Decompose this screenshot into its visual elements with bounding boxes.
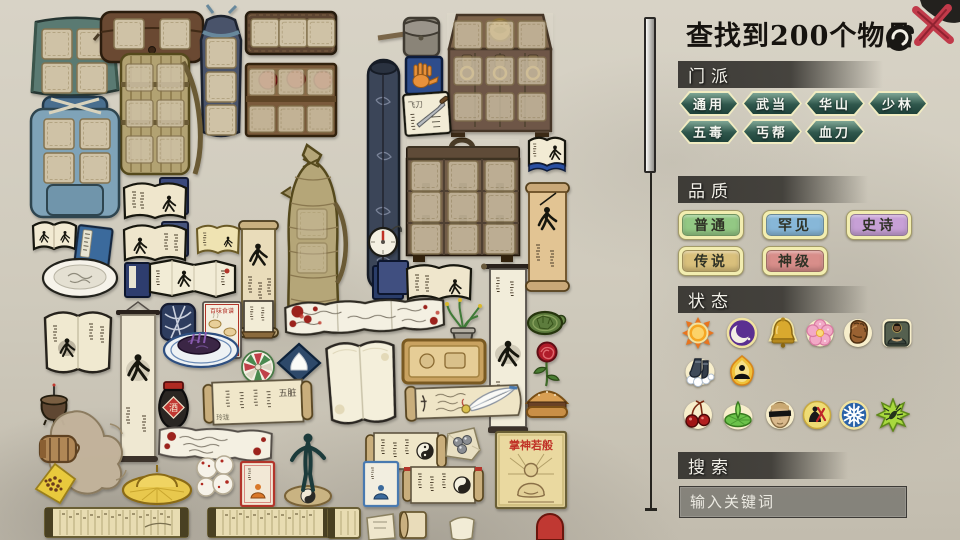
item-palm-poster[interactable]: 掌神若般 [496,432,566,508]
status-title: 状态 [688,287,734,312]
flame-meditation-icon[interactable] [725,354,759,388]
item-small-manual[interactable] [33,222,76,249]
item-bamboo-slip-scroll-2[interactable] [208,508,331,537]
moon-icon[interactable] [725,316,759,350]
sect-option-fivepoison[interactable]: 五毒 [679,119,739,144]
sect-option-shaolin[interactable]: 少林 [868,91,928,116]
organs-scroll-sublabel: 玲珑 [216,412,230,421]
knife-note-label: 飞刀 [407,100,423,110]
item-white-plate[interactable] [43,259,117,297]
search-section-header: 搜索 [678,452,848,479]
item-turtle[interactable] [528,312,566,334]
item-blue-backpack[interactable] [31,97,119,217]
item-floral-pouch[interactable] [201,5,241,136]
item-bloody-letter[interactable] [159,427,272,462]
item-hanging-scroll[interactable] [116,302,160,462]
item-taichi-statue[interactable] [285,434,331,507]
item-wooden-tray[interactable] [403,340,485,383]
quality-title: 品质 [688,177,734,202]
bell-icon[interactable] [766,316,800,350]
sect-option-bloodblade[interactable]: 血刀 [805,119,865,144]
item-pinwheel-plate[interactable] [242,351,274,383]
lotus-icon[interactable] [721,398,755,432]
item-fruit-crate[interactable] [246,64,336,136]
item-purple-dish[interactable] [164,332,238,367]
quality-option-legendary[interactable]: 传说 [678,246,744,276]
item-yinyang-scroll-2[interactable] [403,467,483,503]
item-rose[interactable] [534,343,559,387]
blindfold-icon[interactable] [763,398,797,432]
monk-icon[interactable] [880,316,914,350]
item-knife-note[interactable]: 飞刀 [403,92,451,136]
item-wine-jar[interactable]: 酒 [159,382,188,428]
item-meditation-card[interactable] [241,462,274,506]
item-manual-open-a[interactable] [124,178,188,218]
item-bamboo-slip-scroll[interactable] [45,508,188,537]
item-scroll-fragment-b[interactable] [400,512,426,538]
quality-option-common[interactable]: 普通 [678,210,744,240]
search-input[interactable] [679,486,907,518]
item-open-tome[interactable] [45,312,111,372]
item-organs-scroll[interactable]: 五脏 玲珑 [203,379,312,425]
item-wooden-chest[interactable] [447,13,553,137]
item-book-stack-open[interactable] [373,261,471,299]
sect-section-header: 门派 [678,61,883,88]
item-paper-fragment[interactable] [367,514,395,540]
snowflake-icon[interactable] [837,398,871,432]
sect-title: 门派 [688,62,734,87]
sect-option-huashan[interactable]: 华山 [805,91,865,116]
status-section-header: 状态 [678,286,868,313]
game-screen: 飞刀 [0,0,960,540]
wine-jar-label: 酒 [169,403,178,414]
item-blue-meditation-card[interactable] [364,462,398,506]
quality-option-rare[interactable]: 罕见 [762,210,828,240]
close-button[interactable] [896,0,960,53]
organs-scroll-label: 五脏 [278,387,296,400]
poison-insect-icon[interactable] [876,398,910,432]
item-metal-balls-paper[interactable] [446,428,480,460]
sect-option-beggar[interactable]: 丐帮 [742,119,802,144]
sect-option-wudang[interactable]: 武当 [742,91,802,116]
cloud-boots-icon[interactable] [683,354,717,388]
item-wooden-cabinet[interactable] [407,139,519,262]
item-red-fragment[interactable] [537,514,563,540]
item-straw-hat[interactable] [123,465,191,504]
results-title: 查找到200个物品 [686,14,913,53]
assassin-icon[interactable] [800,398,834,432]
search-title: 搜索 [688,453,734,478]
blossom-icon[interactable] [803,316,837,350]
sect-option-common[interactable]: 通用 [679,91,739,116]
fist-icon[interactable] [841,316,875,350]
item-blue-manual-icon[interactable] [529,138,565,171]
inventory-scrollbar-thumb[interactable] [644,17,656,173]
item-quill-scroll[interactable] [405,383,521,421]
inventory-scrollbar-foot [645,508,657,511]
item-blood-buns[interactable] [197,456,233,496]
quality-option-divine[interactable]: 神级 [762,246,828,276]
inventory-canvas: 飞刀 [0,0,660,540]
item-bloodstained-scroll[interactable] [285,298,444,335]
item-manual-open-b[interactable] [124,222,188,260]
item-gray-pouch[interactable] [378,18,439,56]
cherries-icon[interactable] [681,398,715,432]
quality-section-header: 品质 [678,176,868,203]
item-parchment-scroll[interactable] [526,183,569,291]
item-yellow-booklet[interactable] [197,226,239,253]
quality-option-epic[interactable]: 史诗 [846,210,912,240]
palm-poster-title: 掌神若般 [509,438,553,452]
item-accordion-manual[interactable] [125,260,235,297]
item-tablet-card[interactable] [242,301,275,338]
item-palm-manual-icon[interactable] [406,57,442,94]
item-paper-fragment-2[interactable] [450,517,474,540]
item-salt-pack[interactable] [278,344,320,382]
sun-icon[interactable] [681,316,715,350]
item-scroll-fragment[interactable] [328,508,360,538]
item-meat-bun[interactable] [527,391,567,417]
item-bamboo-backpack[interactable] [121,54,200,174]
item-bandolier[interactable] [246,12,336,54]
item-blank-book[interactable] [326,341,397,424]
